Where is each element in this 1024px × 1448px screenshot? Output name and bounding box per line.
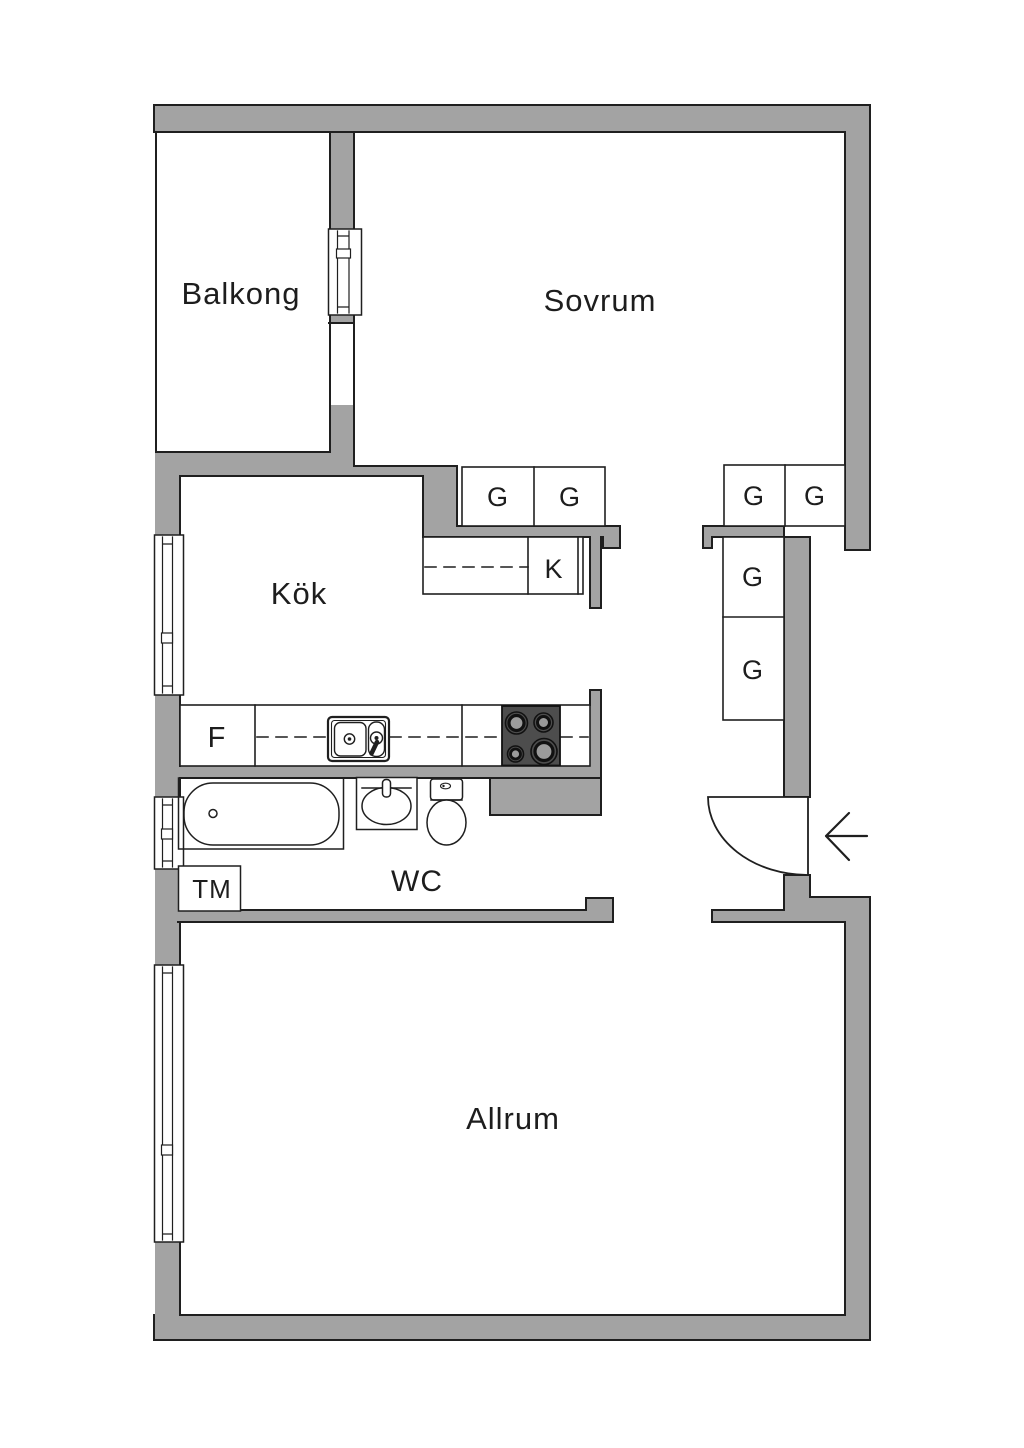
wall-top <box>154 105 870 132</box>
bathroom-sink-tap <box>383 780 391 798</box>
room-label-sovrum: Sovrum <box>544 283 657 318</box>
room-label-balkong: Balkong <box>181 276 300 311</box>
wardrobe-label-5: G <box>742 562 764 592</box>
wall-left-seg3 <box>155 869 180 965</box>
wardrobe-label-2: G <box>559 482 581 512</box>
wall-left-seg2 <box>155 695 180 797</box>
washer-label-tm: TM <box>192 874 232 904</box>
floorplan-drawing: Balkong Sovrum Kök WC Allrum G G G G G G… <box>0 0 1024 1448</box>
wardrobe-label-3: G <box>743 481 765 511</box>
wall-balcony-divider-lower <box>329 405 353 452</box>
entry-door <box>708 797 808 875</box>
wall-kitchen-top-step2 <box>423 476 457 537</box>
wall-left-seg4 <box>155 1242 180 1315</box>
stove <box>502 706 560 766</box>
cabinet-label-k: K <box>544 554 563 584</box>
wall-balcony-door-sill <box>329 315 353 323</box>
floorplan-page: Balkong Sovrum Kök WC Allrum G G G G G G… <box>0 0 1024 1448</box>
wall-sovrum-doorjamb-right <box>703 537 712 548</box>
window-kitchen <box>155 535 184 695</box>
wall-right-upper <box>845 132 870 550</box>
wall-wc-band <box>178 910 613 922</box>
wall-sovrum-bottom-right <box>703 526 784 537</box>
wall-sovrum-bottom-left <box>457 526 620 537</box>
wall-kitchen-bar-lower <box>590 690 601 766</box>
wall-left-seg1 <box>155 476 180 535</box>
wall-wc-band-tab <box>586 898 613 911</box>
wardrobe-label-6: G <box>742 655 764 685</box>
wall-sovrum-doorjamb-left <box>603 537 620 548</box>
kitchen-sink <box>328 717 389 761</box>
bathtub <box>179 778 344 849</box>
wall-balcony-divider-upper <box>329 132 354 229</box>
bathroom-sink <box>357 778 418 830</box>
wall-kitchen-top-step1 <box>353 466 458 476</box>
fridge-label-f: F <box>208 722 227 754</box>
wardrobe-label-1: G <box>487 482 509 512</box>
wall-counter-band <box>155 766 601 778</box>
wall-kitchen-bar-upper <box>590 537 601 608</box>
sink-faucet <box>375 736 379 740</box>
entry-arrow-icon <box>826 813 867 860</box>
room-label-kok: Kök <box>271 576 327 611</box>
room-label-wc: WC <box>391 865 443 898</box>
wall-corridor <box>784 537 810 797</box>
wardrobe-label-4: G <box>804 481 826 511</box>
room-label-allrum: Allrum <box>466 1101 560 1136</box>
sink-drain <box>348 737 352 741</box>
window-balcony-door <box>329 229 362 315</box>
wall-wc-block <box>490 778 601 815</box>
toilet-bowl <box>427 800 466 845</box>
wall-balcony-bottom <box>155 452 353 476</box>
window-livingroom <box>155 965 184 1242</box>
toilet <box>427 779 466 845</box>
